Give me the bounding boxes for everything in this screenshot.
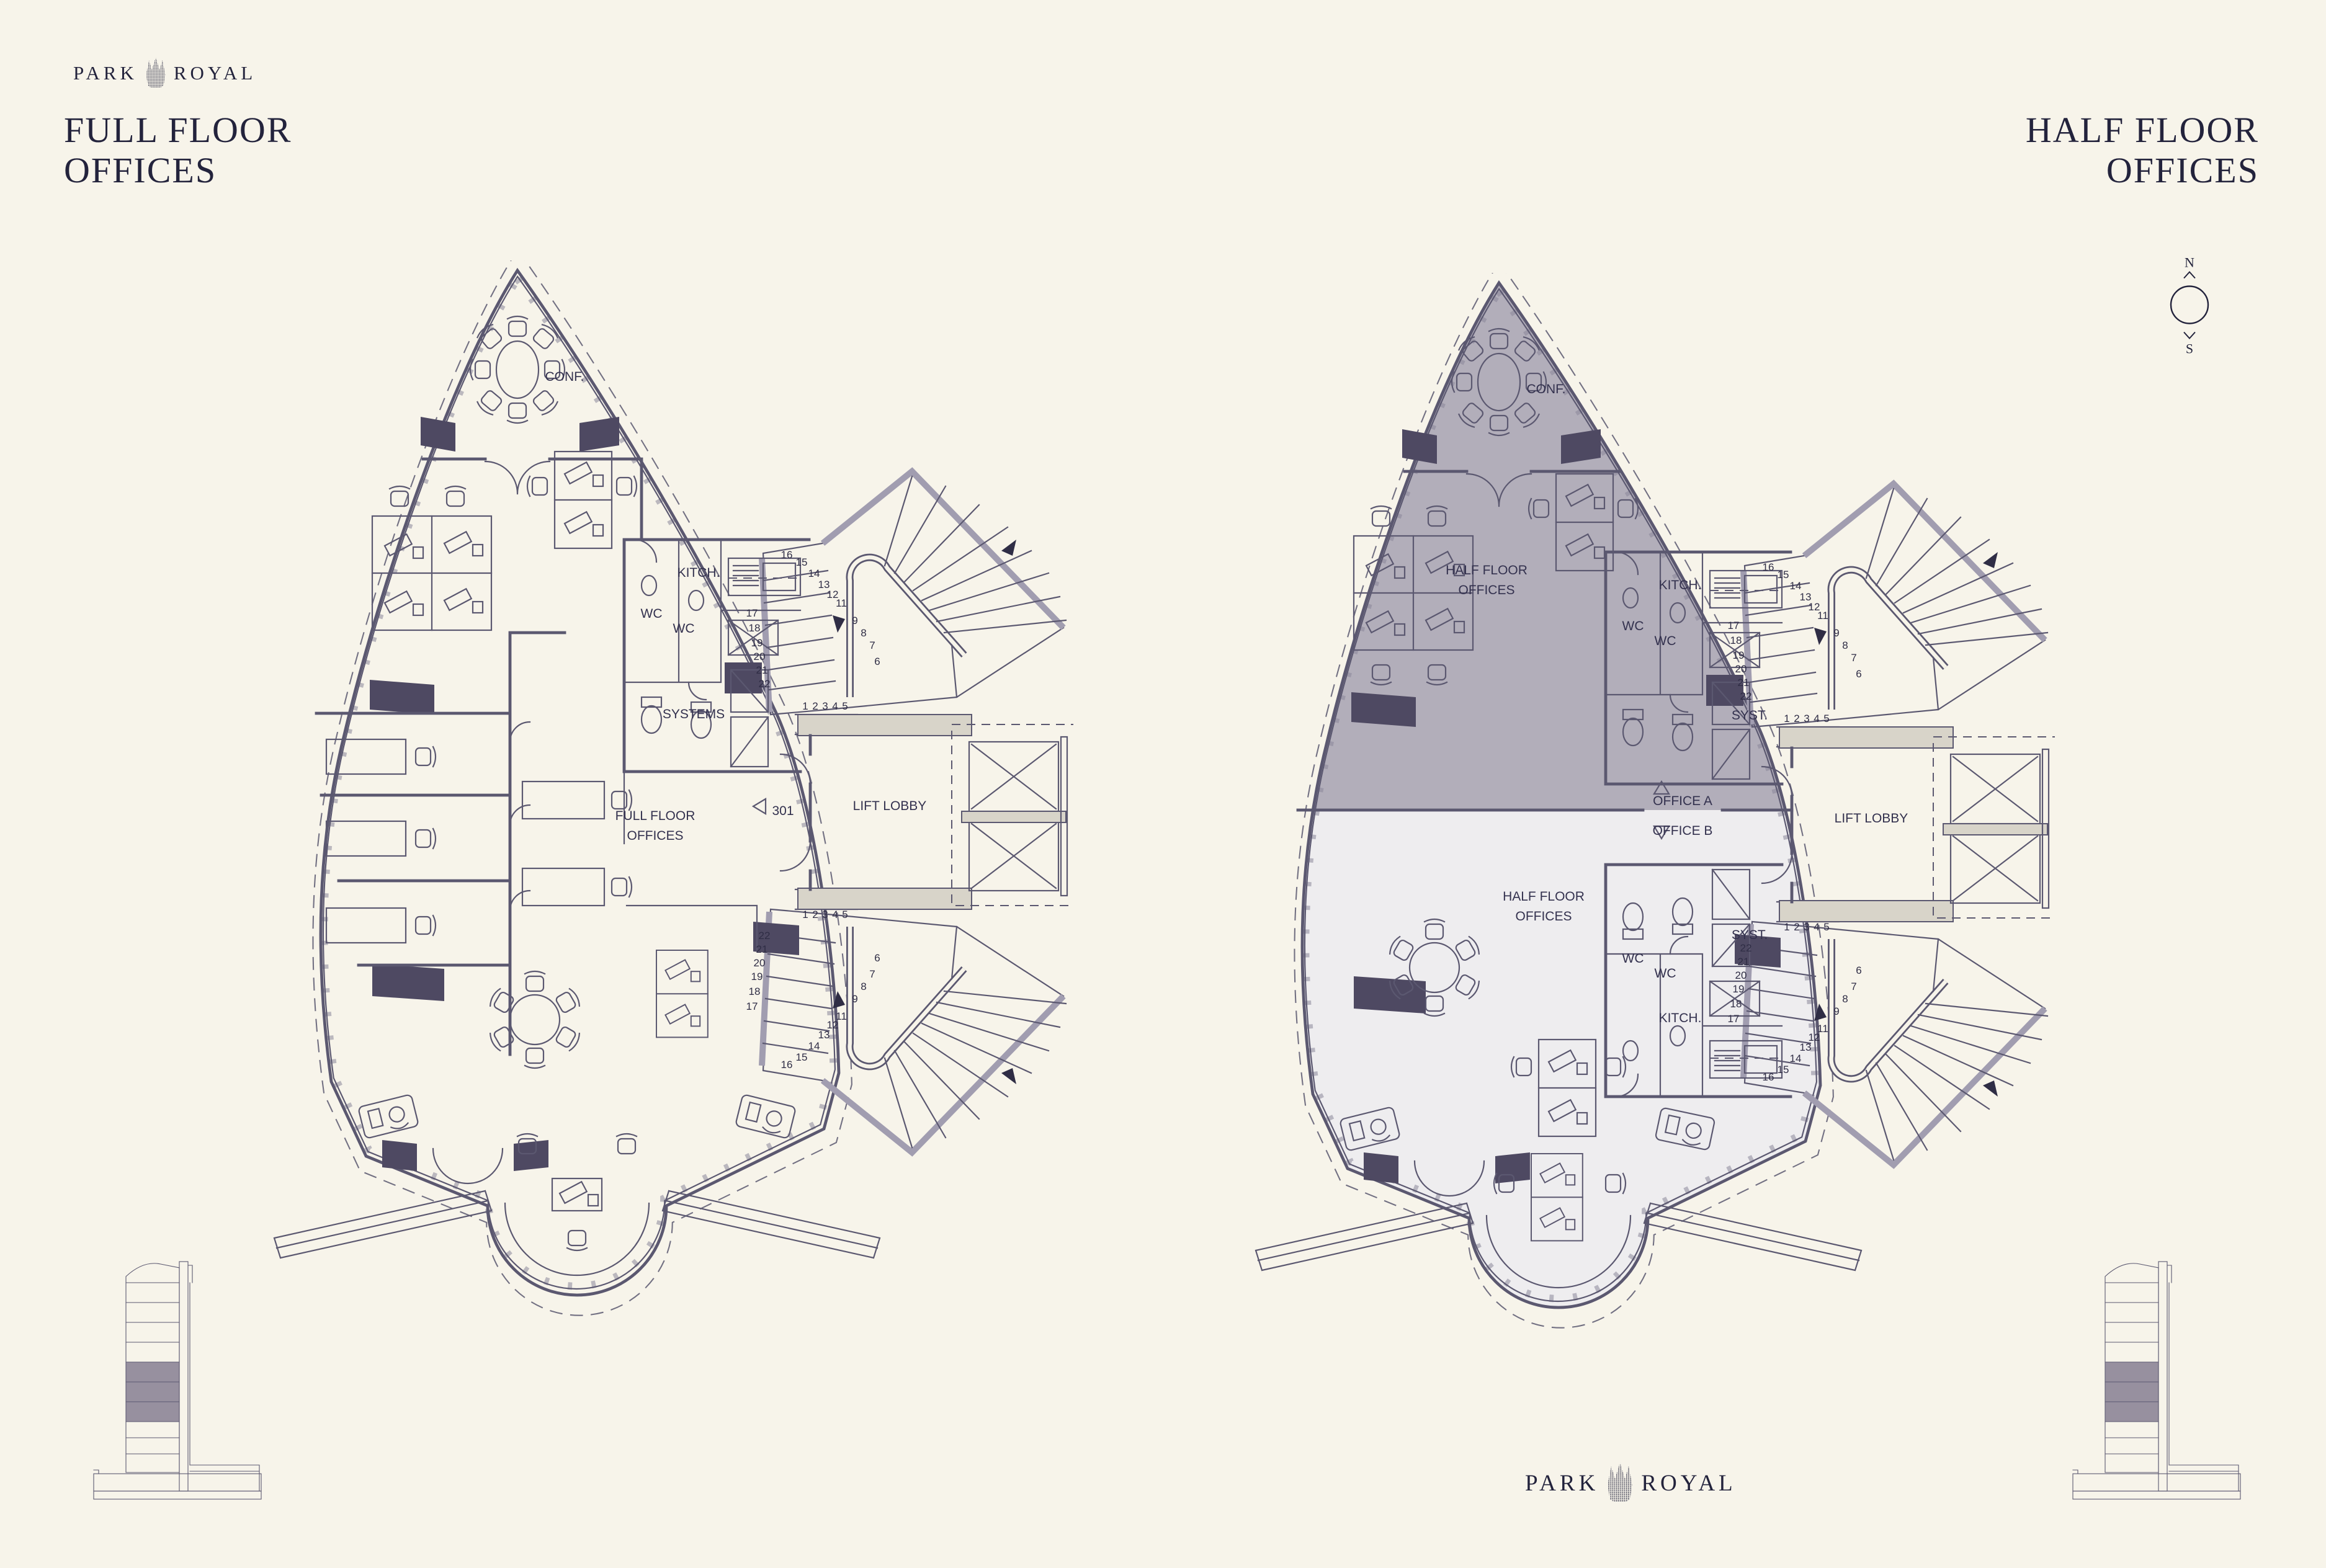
stair-step-number: 3: [822, 909, 828, 920]
room-label-kitchen: KITCH.: [1659, 578, 1702, 592]
stair-step-number: 16: [1763, 1071, 1774, 1083]
stair-step-number: 8: [1842, 993, 1848, 1005]
stair-step-number: 22: [759, 930, 771, 942]
stair-step-number: 2: [812, 700, 818, 712]
stair-step-number: 18: [749, 986, 761, 997]
stair-step-number: 9: [1833, 627, 1839, 639]
unit-number-label: 301: [772, 804, 794, 818]
room-label-syst: SYST.: [1732, 708, 1768, 723]
stair-step-number: 5: [842, 909, 848, 920]
stair-step-number: 2: [812, 909, 818, 920]
title-line: FULL FLOOR: [64, 110, 292, 151]
stair-step-number: 4: [1814, 921, 1819, 933]
stair-step-number: 15: [1778, 1064, 1789, 1076]
compass-icon: N S: [2168, 249, 2211, 364]
stair-step-number: 14: [808, 568, 820, 579]
stair-step-number: 11: [836, 597, 847, 609]
stair-step-number: 7: [1851, 652, 1856, 664]
stair-step-number: 20: [754, 957, 766, 969]
stair-step-number: 7: [869, 639, 875, 651]
brand-royal: ROYAL: [1641, 1470, 1736, 1497]
crown-icon: [145, 57, 166, 89]
stair-step-number: 3: [1804, 921, 1809, 933]
stair-step-number: 19: [1733, 983, 1745, 995]
stair-step-number: 22: [759, 678, 771, 690]
stair-step-number: 19: [1733, 649, 1745, 661]
room-label-half-floor-line2: OFFICES: [1515, 909, 1572, 924]
stair-step-number: 21: [756, 664, 768, 676]
stair-step-number: 9: [852, 615, 857, 626]
brand-park: PARK: [73, 62, 138, 84]
room-label-wc: WC: [673, 621, 695, 636]
building-elevation-icon-right: [2071, 1254, 2245, 1502]
stair-step-number: 6: [1856, 964, 1861, 976]
stair-step-number: 14: [1790, 1053, 1802, 1064]
room-label-wc: WC: [1655, 966, 1676, 981]
room-label-office-b: OFFICE B: [1653, 824, 1713, 838]
stair-step-number: 14: [808, 1040, 820, 1052]
stair-step-number: 14: [1790, 580, 1802, 592]
page-title-right: HALF FLOOR OFFICES: [2026, 110, 2259, 191]
brand-logo-top: PARK ROYAL: [73, 57, 256, 89]
room-label-offices-line1: FULL FLOOR: [615, 809, 696, 823]
stair-step-number: 17: [1728, 620, 1740, 631]
stair-step-number: 4: [1814, 713, 1819, 724]
brand-royal: ROYAL: [174, 62, 256, 84]
stair-step-number: 20: [754, 651, 766, 662]
page-title-left: FULL FLOOR OFFICES: [64, 110, 292, 191]
room-label-systems: SYSTEMS: [663, 707, 725, 721]
room-label-wc: WC: [1622, 619, 1644, 633]
stair-step-number: 5: [1823, 713, 1829, 724]
stair-step-number: 18: [1730, 998, 1742, 1010]
room-label-wc: WC: [1655, 634, 1676, 648]
compass-south-label: S: [2186, 341, 2193, 357]
stair-step-number: 8: [861, 627, 866, 639]
full-floor-plan: CONF. KITCH. WC WC SYSTEMS FULL FLOOR OF…: [267, 261, 1073, 1321]
stair-step-number: 3: [822, 700, 828, 712]
room-label-offices-line2: OFFICES: [627, 829, 683, 843]
stair-step-number: 21: [756, 943, 768, 955]
stair-step-number: 1: [802, 700, 808, 712]
crown-icon: [1606, 1463, 1634, 1503]
stair-step-number: 9: [1833, 1005, 1839, 1017]
stair-step-number: 17: [746, 1000, 758, 1012]
room-label-kitchen: KITCH.: [678, 566, 720, 580]
stair-step-number: 11: [1817, 1023, 1828, 1035]
room-label-half-floor-line2: OFFICES: [1458, 583, 1514, 597]
stair-step-number: 2: [1794, 713, 1799, 724]
room-label-kitchen: KITCH.: [1659, 1011, 1702, 1025]
stair-step-number: 5: [842, 700, 848, 712]
stair-step-number: 17: [746, 607, 758, 619]
stair-step-number: 5: [1823, 921, 1829, 933]
room-label-wc: WC: [641, 607, 663, 621]
stair-step-number: 6: [874, 656, 880, 667]
stair-step-number: 21: [1738, 677, 1750, 688]
title-line: OFFICES: [64, 151, 292, 191]
stair-step-number: 22: [1740, 942, 1752, 954]
stair-step-number: 15: [1778, 569, 1789, 581]
page: { "brand": { "park": "PARK", "royal": "R…: [0, 0, 2326, 1568]
stair-step-number: 1: [1784, 713, 1789, 724]
room-label-wc: WC: [1622, 951, 1644, 966]
stair-step-number: 6: [1856, 668, 1861, 680]
stair-step-number: 15: [796, 1051, 808, 1063]
stair-step-number: 18: [1730, 635, 1742, 646]
stair-step-number: 4: [832, 909, 838, 920]
stair-step-number: 16: [781, 1059, 793, 1071]
stair-step-number: 21: [1738, 956, 1750, 968]
stair-step-number: 7: [1851, 981, 1856, 992]
room-label-office-a: OFFICE A: [1653, 794, 1712, 808]
stair-step-number: 1: [1784, 921, 1789, 933]
furniture: [326, 316, 796, 1250]
stair-step-number: 20: [1735, 663, 1747, 675]
room-label-conference: CONF.: [545, 370, 584, 384]
stair-step-number: 7: [869, 968, 875, 980]
stair-step-number: 16: [781, 549, 793, 561]
title-line: OFFICES: [2026, 151, 2259, 191]
room-label-conference: CONF.: [1527, 382, 1566, 396]
compass-north-label: N: [2185, 255, 2194, 270]
stair-step-number: 16: [1763, 561, 1774, 573]
stair-step-number: 19: [751, 637, 763, 649]
stair-step-number: 17: [1728, 1013, 1740, 1025]
stair-step-number: 9: [852, 993, 857, 1005]
title-line: HALF FLOOR: [2026, 110, 2259, 151]
brand-logo-bottom: PARK ROYAL: [1525, 1463, 1737, 1503]
stair-step-number: 20: [1735, 969, 1747, 981]
room-label-syst: SYST.: [1732, 928, 1768, 942]
stair-step-number: 18: [749, 622, 761, 634]
stair-step-number: 8: [1842, 639, 1848, 651]
stair-step-number: 22: [1740, 690, 1752, 702]
stair-step-number: 1: [802, 909, 808, 920]
stair-step-number: 15: [796, 556, 808, 568]
stair-step-number: 6: [874, 952, 880, 964]
room-label-half-floor-line1: HALF FLOOR: [1503, 889, 1585, 904]
room-label-lift-lobby: LIFT LOBBY: [853, 799, 927, 813]
room-label-lift-lobby: LIFT LOBBY: [1835, 811, 1908, 826]
half-floor-plan: CONF. HALF FLOOR OFFICES KITCH. WC WC SY…: [1248, 273, 2055, 1334]
brand-park: PARK: [1525, 1470, 1599, 1497]
stair-step-number: 2: [1794, 921, 1799, 933]
stair-step-number: 8: [861, 981, 866, 992]
stair-step-number: 19: [751, 971, 763, 982]
stair-step-number: 11: [836, 1010, 847, 1022]
building-elevation-icon-left: [92, 1254, 266, 1502]
stair-step-number: 11: [1817, 610, 1828, 621]
stair-step-number: 4: [832, 700, 838, 712]
stair-step-number: 3: [1804, 713, 1809, 724]
room-label-half-floor-line1: HALF FLOOR: [1446, 563, 1528, 577]
